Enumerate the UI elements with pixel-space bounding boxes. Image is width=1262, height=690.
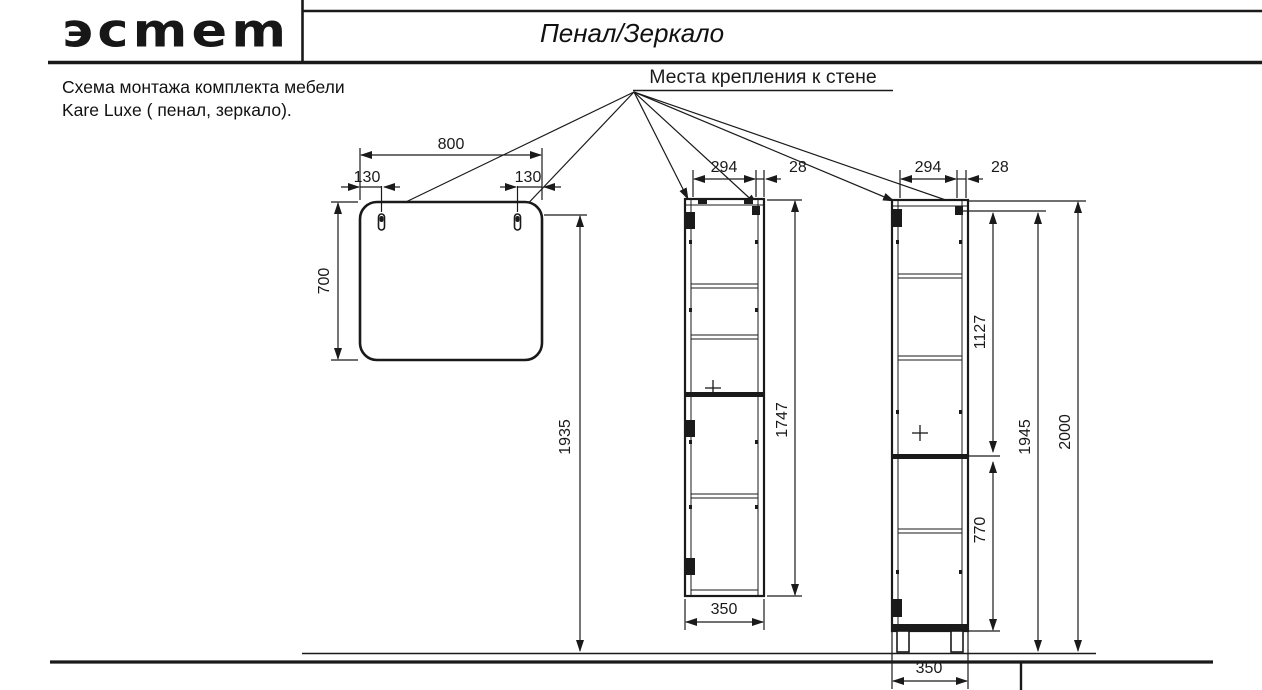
cabinet-side-drawing: 294 28 1127 770 1945 2000 xyxy=(892,159,1086,689)
dim-cabinet-side-panel: 28 xyxy=(991,159,1009,176)
dim-cabinet-front-bottom-width: 350 xyxy=(711,601,738,618)
dim-mirror-width: 800 xyxy=(438,136,465,153)
dim-mirror-offset-right: 130 xyxy=(515,169,542,186)
header-rules xyxy=(48,0,1262,63)
dim-cabinet-side-mount-height: 1945 xyxy=(1017,419,1034,455)
floor-lines xyxy=(50,654,1213,690)
dim-cabinet-front-door-width: 294 xyxy=(711,159,738,176)
mirror-keyhole-right xyxy=(515,214,521,230)
callout-leader-lines xyxy=(383,92,963,213)
drawing-sheet: эсmеm Пенал/Зеркало Схема монтажа компле… xyxy=(0,0,1262,690)
dim-cabinet-side-upper-span: 1127 xyxy=(972,315,989,350)
wall-fixing-callout: Места крепления к стене xyxy=(383,66,963,213)
mounting-diagram: Места крепления к стене xyxy=(0,0,1262,690)
cabinet-front-drawing: 294 28 1747 350 xyxy=(685,159,807,630)
dim-cabinet-side-door-width: 294 xyxy=(915,159,942,176)
dim-mirror-height: 700 xyxy=(316,268,333,295)
dim-mirror-offset-left: 130 xyxy=(354,169,381,186)
cabinet-side-worktop-shelf xyxy=(893,454,967,459)
dim-cabinet-front-height: 1747 xyxy=(774,402,791,438)
mirror-dim-700 xyxy=(331,202,358,360)
cabinet-front-dim-1747 xyxy=(767,200,802,596)
dim-cabinet-front-panel: 28 xyxy=(789,159,807,176)
wall-fixing-label: Места крепления к стене xyxy=(649,66,877,88)
cabinet-front-worktop-shelf xyxy=(686,392,763,397)
mirror-keyhole-left xyxy=(379,214,385,230)
dim-cabinet-side-lower-span: 770 xyxy=(972,517,989,544)
dim-cabinet-side-total-height: 2000 xyxy=(1057,414,1074,450)
cabinet-side-feet xyxy=(897,631,963,652)
cabinet-side-bottom-panel xyxy=(893,624,967,631)
cabinet-side-dim-294-28 xyxy=(900,170,983,198)
dim-mirror-mount-height: 1935 xyxy=(557,419,574,455)
mirror-drawing: 800 130 130 700 xyxy=(316,136,587,651)
